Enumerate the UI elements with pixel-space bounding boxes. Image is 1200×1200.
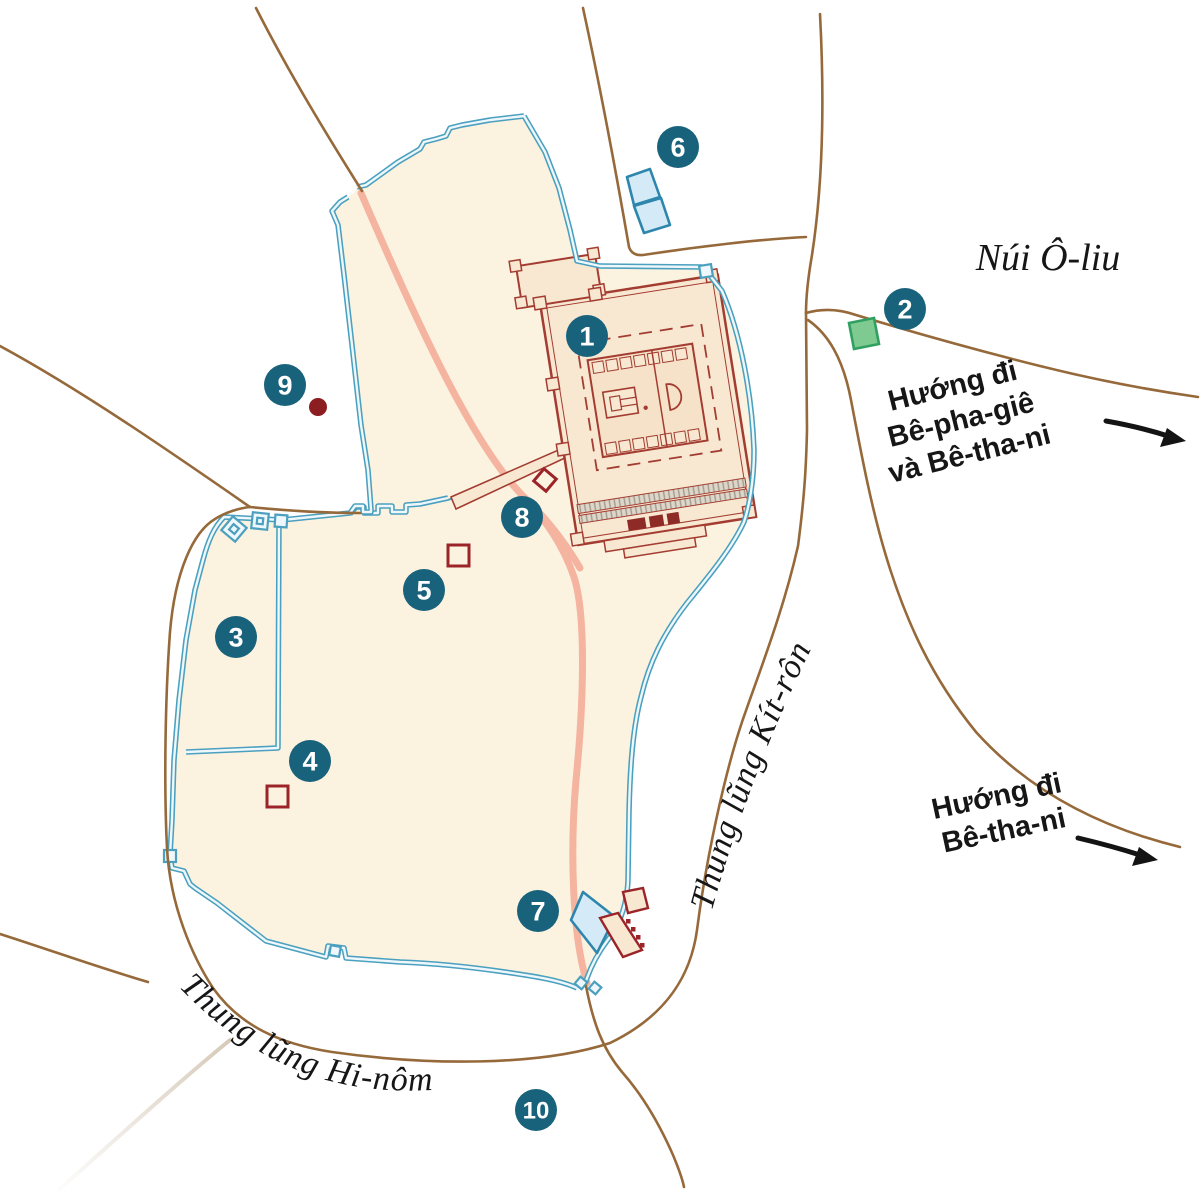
- site-structure-7a: [623, 888, 648, 913]
- marker-number: 1: [579, 322, 594, 352]
- svg-text:Hướng điBê-tha-ni: Hướng điBê-tha-ni: [929, 767, 1072, 860]
- label-to-bethphage: Hướng điBê-pha-giêvà Bê-tha-ni: [868, 351, 1054, 490]
- marker-number: 9: [277, 371, 292, 401]
- label-mount-olives: Núi Ô-liu: [975, 237, 1121, 279]
- marker-number: 2: [897, 295, 912, 325]
- marker-number: 7: [530, 897, 545, 927]
- marker-number: 10: [523, 1098, 550, 1125]
- site-square-2: [849, 318, 879, 349]
- map-marker-8: 8: [501, 496, 543, 538]
- map-marker-1: 1: [566, 315, 608, 357]
- marker-number: 5: [416, 576, 431, 606]
- marker-number: 8: [514, 503, 529, 533]
- marker-number: 4: [302, 747, 317, 777]
- direction-arrow-bethany: [1078, 838, 1158, 866]
- jerusalem-map-svg: Núi Ô-liu Thung lũng Kít-rôn Thung lũng …: [0, 0, 1200, 1200]
- road-west-approach: [0, 346, 250, 507]
- map-marker-3: 3: [215, 616, 257, 658]
- map-marker-9: 9: [264, 364, 306, 406]
- road-northwest: [256, 8, 362, 191]
- map-marker-6: 6: [657, 126, 699, 168]
- site-square-5: [448, 545, 469, 566]
- site-dot-9: [309, 398, 327, 416]
- road-south-gate: [586, 986, 684, 1187]
- map-marker-5: 5: [403, 569, 445, 611]
- road-faded-southwest: [52, 1040, 230, 1196]
- site-square-4: [267, 786, 288, 807]
- map-marker-4: 4: [289, 740, 331, 782]
- map-marker-7: 7: [517, 890, 559, 932]
- label-to-bethany: Hướng điBê-tha-ni: [929, 767, 1072, 860]
- map-marker-10: 10: [515, 1089, 557, 1131]
- label-hinnom-valley: Thung lũng Hi-nôm: [173, 966, 434, 1098]
- jerusalem-map: Núi Ô-liu Thung lũng Kít-rôn Thung lũng …: [0, 0, 1200, 1200]
- site-pools-6-lower: [634, 198, 670, 233]
- road-along-north-wall: [250, 507, 360, 513]
- map-marker-2: 2: [884, 288, 926, 330]
- road-north-east: [806, 14, 822, 313]
- road-north-center: [583, 8, 806, 255]
- road-southwest-approach: [0, 934, 148, 982]
- marker-number: 6: [670, 133, 685, 163]
- direction-arrow-bethphage: [1106, 421, 1186, 447]
- svg-text:Hướng điBê-pha-giêvà Bê-tha-ni: Hướng điBê-pha-giêvà Bê-tha-ni: [868, 351, 1054, 490]
- marker-number: 3: [228, 623, 243, 653]
- label-kidron-valley: Thung lũng Kít-rôn: [684, 635, 819, 914]
